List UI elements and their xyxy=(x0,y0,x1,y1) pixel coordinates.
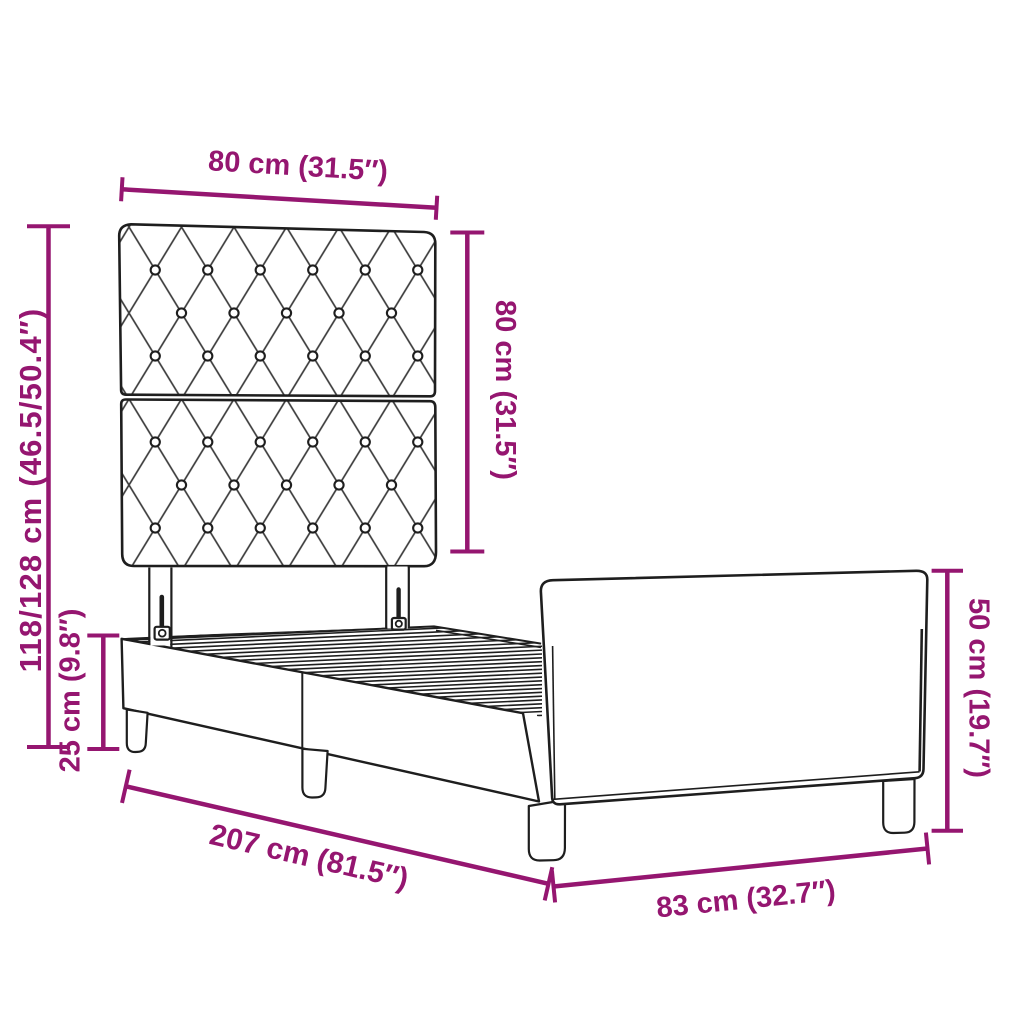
svg-text:50 cm (19.7″): 50 cm (19.7″) xyxy=(963,598,995,778)
svg-text:25 cm (9.8″): 25 cm (9.8″) xyxy=(55,609,87,773)
svg-text:80 cm (31.5″): 80 cm (31.5″) xyxy=(489,300,521,480)
svg-text:118/128 cm (46.5/50.4″): 118/128 cm (46.5/50.4″) xyxy=(13,308,48,673)
